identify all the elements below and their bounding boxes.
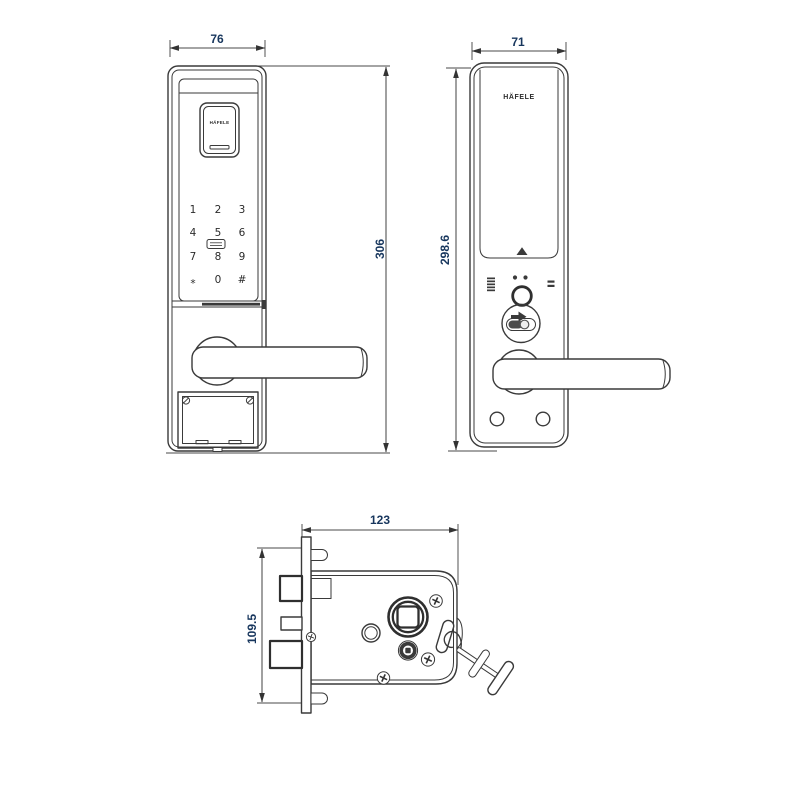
faceplate-screw xyxy=(306,632,315,641)
spindle-square-hole xyxy=(398,607,419,628)
thumbturn-spindle xyxy=(398,641,417,660)
back-logo: HÄFELE xyxy=(503,93,535,101)
compartment-notch xyxy=(213,448,222,452)
key-9: 9 xyxy=(239,251,246,263)
auxiliary-latch xyxy=(281,617,302,630)
back-width-label: 71 xyxy=(511,35,525,49)
key-7: 7 xyxy=(190,251,197,263)
key-2: 2 xyxy=(215,204,222,216)
deadbolt xyxy=(270,641,302,668)
faceplate-pin-bottom xyxy=(311,693,328,704)
key-flange xyxy=(467,649,491,679)
key-8: 8 xyxy=(215,251,222,263)
mortise-height-label: 109.5 xyxy=(245,614,259,644)
key-4: 4 xyxy=(190,227,197,239)
spindle-hub xyxy=(389,598,428,637)
mortise-width-label: 123 xyxy=(370,513,390,527)
key-6: 6 xyxy=(239,227,246,239)
key-1: 1 xyxy=(190,204,197,216)
front-width-dimension: 76 xyxy=(170,32,265,57)
case-screw-top xyxy=(430,595,443,608)
faceplate xyxy=(302,537,312,713)
case-screw-bottom xyxy=(377,672,389,684)
toggle-knob xyxy=(520,320,529,329)
case-screw-middle xyxy=(421,653,434,666)
key-0: 0 xyxy=(215,274,222,286)
lock-technical-drawing: 76 306 HÄFELE 1 2 3 4 5 6 xyxy=(0,0,800,800)
mortise-lock-view: 123 109.5 xyxy=(245,513,515,713)
module-logo: HÄFELE xyxy=(210,119,230,125)
faceplate-pin-top xyxy=(311,550,328,561)
back-height-label: 298.6 xyxy=(438,235,452,265)
display-module: HÄFELE xyxy=(200,103,239,157)
mortise-case-outline xyxy=(311,571,457,684)
key-star: * xyxy=(190,278,195,290)
key-hash: # xyxy=(238,274,247,286)
key-5: 5 xyxy=(215,227,222,239)
back-width-dimension: 71 xyxy=(472,35,566,60)
front-width-label: 76 xyxy=(210,32,224,46)
key-3: 3 xyxy=(239,204,246,216)
front-handle xyxy=(192,347,367,378)
key-t-handle xyxy=(486,660,515,697)
led-indicator-right xyxy=(523,275,527,279)
latch-bolt xyxy=(280,576,302,601)
back-handle xyxy=(493,359,670,389)
technical-drawing-page: 76 306 HÄFELE 1 2 3 4 5 6 xyxy=(0,0,800,800)
led-indicator-left xyxy=(513,275,517,279)
front-view: 76 306 HÄFELE 1 2 3 4 5 6 xyxy=(166,32,390,453)
front-height-label: 306 xyxy=(373,239,387,259)
back-view: 71 298.6 HÄFELE xyxy=(438,35,670,451)
